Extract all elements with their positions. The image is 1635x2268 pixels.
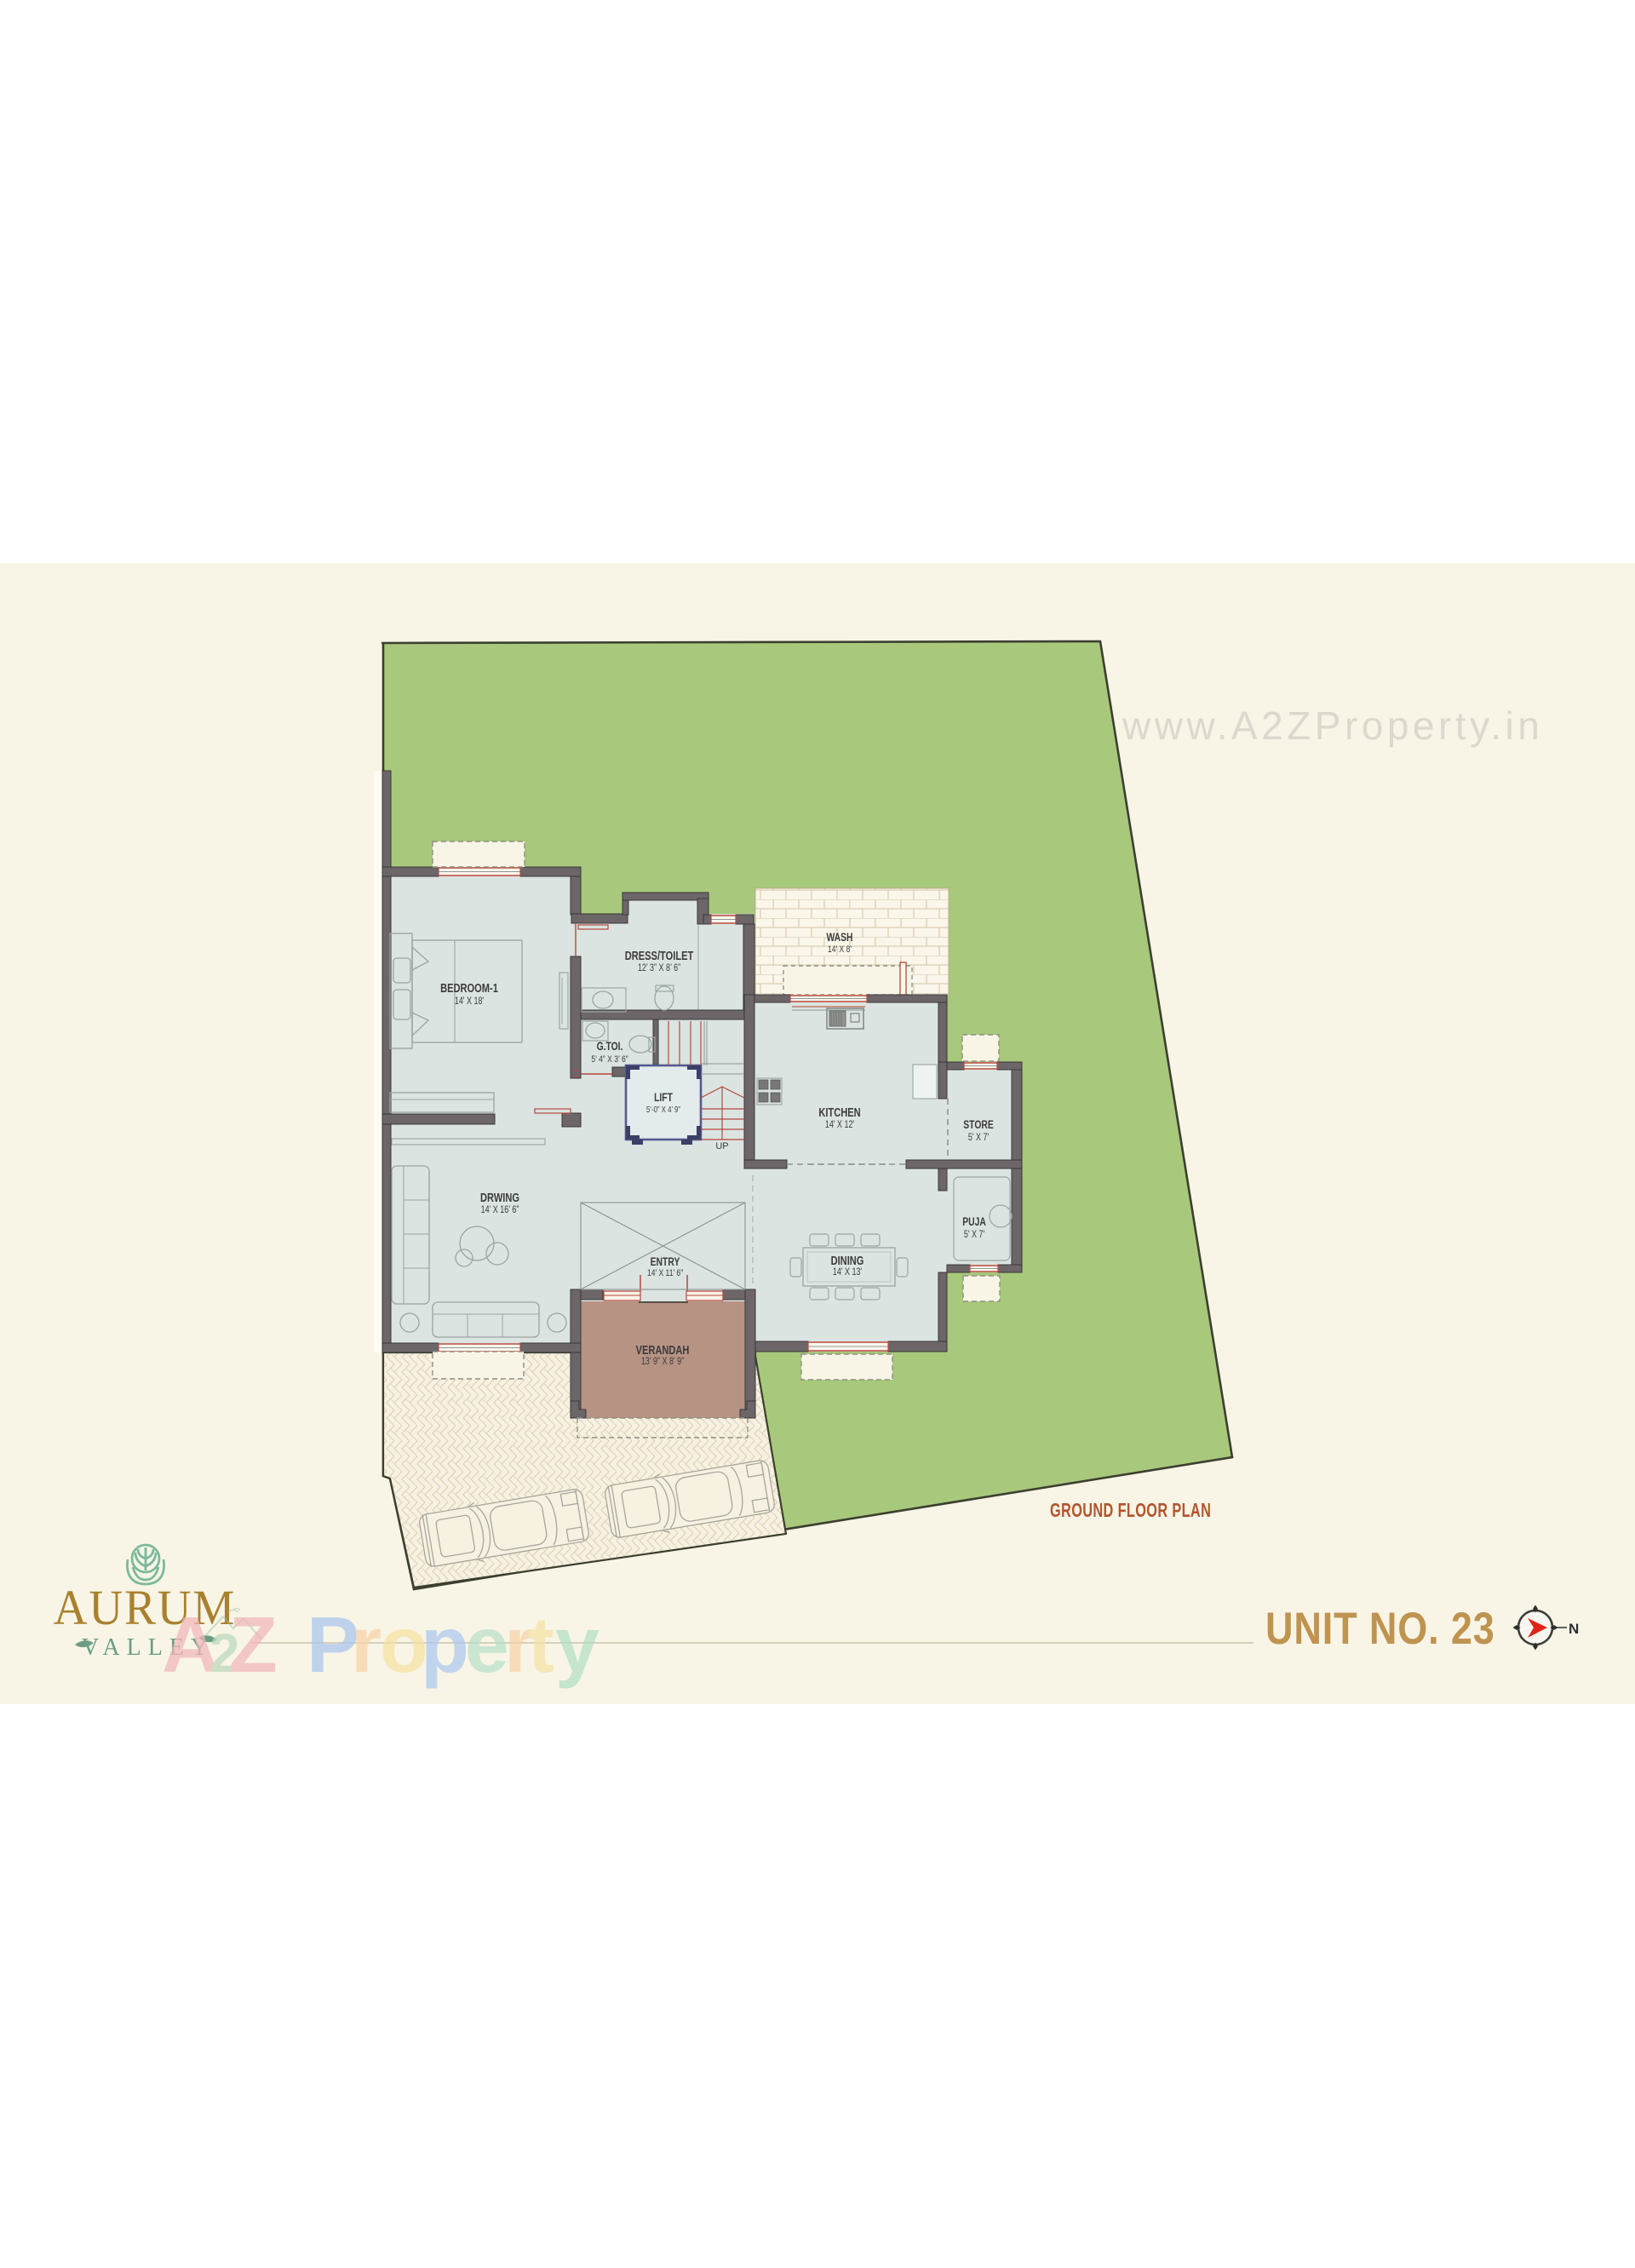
svg-text:STORE: STORE [963,1117,993,1131]
svg-text:N: N [1569,1621,1579,1637]
svg-text:t: t [528,1600,554,1689]
svg-text:5' X 7': 5' X 7' [964,1230,984,1240]
svg-text:KITCHEN: KITCHEN [818,1105,860,1119]
svg-text:VERANDAH: VERANDAH [636,1342,690,1357]
svg-text:LIFT: LIFT [654,1090,673,1104]
svg-text:14’ X 11’ 6”: 14’ X 11’ 6” [647,1268,683,1278]
svg-text:5’-0” X 4’ 9”: 5’-0” X 4’ 9” [646,1105,680,1114]
svg-text:DRESS/TOILET: DRESS/TOILET [625,948,694,962]
svg-text:5’ 4” X 3’ 6”: 5’ 4” X 3’ 6” [591,1054,628,1065]
svg-text:e: e [465,1600,509,1689]
svg-text:GROUND FLOOR PLAN: GROUND FLOOR PLAN [1050,1500,1211,1521]
svg-text:y: y [555,1600,599,1689]
svg-text:DINING: DINING [831,1253,864,1267]
svg-text:WASH: WASH [826,930,852,944]
svg-text:BEDROOM-1: BEDROOM-1 [440,980,498,995]
svg-text:14' X 18': 14' X 18' [455,996,484,1007]
svg-text:13’ 9” X 8’ 9”: 13’ 9” X 8’ 9” [641,1357,685,1367]
svg-text:UP: UP [715,1141,728,1151]
svg-text:5' X 7': 5' X 7' [968,1133,989,1143]
svg-text:14' X 12': 14' X 12' [825,1120,854,1130]
svg-text:Z: Z [229,1600,278,1689]
svg-text:DRWING: DRWING [480,1190,519,1204]
svg-text:p: p [421,1600,469,1689]
svg-text:UNIT NO. 23: UNIT NO. 23 [1265,1604,1495,1654]
svg-text:PUJA: PUJA [962,1214,986,1228]
svg-text:ENTRY: ENTRY [651,1255,680,1268]
svg-text:G.TOI.: G.TOI. [597,1039,623,1053]
svg-text:r: r [351,1600,381,1689]
svg-text:14' X 13': 14' X 13' [833,1267,862,1278]
svg-text:12’ 3” X 8’ 6”: 12’ 3” X 8’ 6” [638,963,681,973]
svg-text:www.A2ZProperty.in: www.A2ZProperty.in [1122,703,1543,748]
svg-text:14’ X 16’ 6”: 14’ X 16’ 6” [481,1205,519,1215]
svg-text:14' X 8': 14' X 8' [828,945,852,955]
